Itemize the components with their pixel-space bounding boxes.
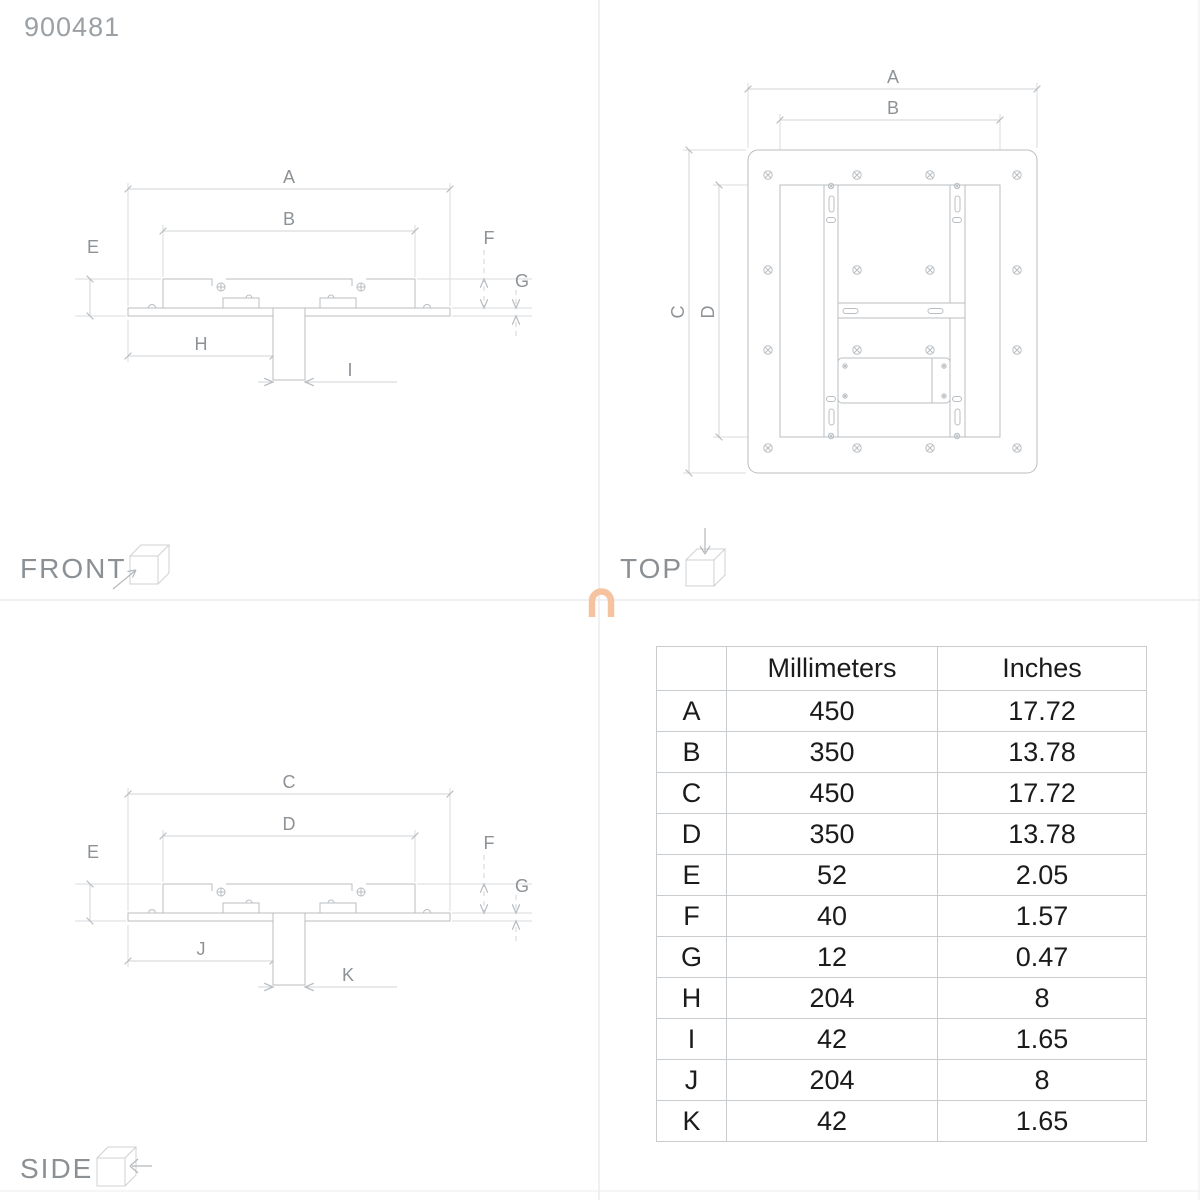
- watermark: [592, 592, 611, 618]
- side-view-drawing: C D E F G J K: [75, 772, 532, 987]
- mm-value-cell: 450: [727, 773, 938, 814]
- table-row: H2048: [657, 978, 1147, 1019]
- mm-value-cell: 52: [727, 855, 938, 896]
- inch-value-cell: 17.72: [938, 691, 1147, 732]
- table-header-inches: Inches: [938, 647, 1147, 691]
- drawing-sheet: { "product_code": "900481", "views": { "…: [0, 0, 1200, 1200]
- front-dim-label-b: B: [283, 209, 295, 229]
- table-row: B35013.78: [657, 732, 1147, 773]
- front-view-title: FRONT: [20, 553, 126, 584]
- table-row: C45017.72: [657, 773, 1147, 814]
- table-row: I421.65: [657, 1019, 1147, 1060]
- front-dim-label-f: F: [484, 228, 495, 248]
- front-dim-label-h: H: [195, 334, 208, 354]
- front-dim-label-g: G: [515, 271, 529, 291]
- dimension-table: Millimeters Inches A45017.72B35013.78C45…: [656, 646, 1146, 1142]
- inch-value-cell: 1.57: [938, 896, 1147, 937]
- dim-key-cell: D: [657, 814, 727, 855]
- cross-bracket: [838, 303, 965, 318]
- dimension-table-body: A45017.72B35013.78C45017.72D35013.78E522…: [657, 691, 1147, 1142]
- inch-value-cell: 0.47: [938, 937, 1147, 978]
- dim-key-cell: J: [657, 1060, 727, 1101]
- product-code: 900481: [24, 12, 120, 42]
- top-view-title: TOP: [620, 553, 683, 584]
- side-dim-label-d: D: [283, 814, 296, 834]
- table-row: E522.05: [657, 855, 1147, 896]
- side-dim-label-j: J: [197, 939, 206, 959]
- dim-key-cell: A: [657, 691, 727, 732]
- mm-value-cell: 204: [727, 1060, 938, 1101]
- mm-value-cell: 350: [727, 732, 938, 773]
- driver-box: [838, 358, 950, 403]
- table-header-row: Millimeters Inches: [657, 647, 1147, 691]
- table-row: J2048: [657, 1060, 1147, 1101]
- dim-key-cell: C: [657, 773, 727, 814]
- inch-value-cell: 1.65: [938, 1019, 1147, 1060]
- table-header-millimeters: Millimeters: [727, 647, 938, 691]
- table-header-key: [657, 647, 727, 691]
- top-dim-label-d: D: [698, 306, 718, 319]
- top-dim-label-c: C: [668, 306, 688, 319]
- front-dim-label-i: I: [347, 360, 352, 380]
- mm-value-cell: 42: [727, 1019, 938, 1060]
- inch-value-cell: 1.65: [938, 1101, 1147, 1142]
- top-view-drawing: A B C D: [668, 67, 1037, 473]
- dim-key-cell: B: [657, 732, 727, 773]
- dim-key-cell: F: [657, 896, 727, 937]
- inch-value-cell: 13.78: [938, 814, 1147, 855]
- inch-value-cell: 13.78: [938, 732, 1147, 773]
- top-dim-label-b: B: [887, 98, 899, 118]
- side-dim-label-k: K: [342, 965, 354, 985]
- front-view-drawing: A B E F G H I: [75, 167, 532, 382]
- inch-value-cell: 8: [938, 1060, 1147, 1101]
- side-dim-label-f: F: [484, 833, 495, 853]
- mm-value-cell: 204: [727, 978, 938, 1019]
- mm-value-cell: 350: [727, 814, 938, 855]
- dim-key-cell: E: [657, 855, 727, 896]
- table-row: G120.47: [657, 937, 1147, 978]
- side-dim-label-g: G: [515, 876, 529, 896]
- dim-key-cell: H: [657, 978, 727, 1019]
- side-dim-label-e: E: [87, 842, 99, 862]
- side-view-title: SIDE: [20, 1153, 93, 1184]
- top-dim-label-a: A: [887, 67, 899, 87]
- inch-value-cell: 8: [938, 978, 1147, 1019]
- inch-value-cell: 17.72: [938, 773, 1147, 814]
- inch-value-cell: 2.05: [938, 855, 1147, 896]
- side-view-cube-icon: [97, 1147, 152, 1186]
- table-row: A45017.72: [657, 691, 1147, 732]
- table-row: D35013.78: [657, 814, 1147, 855]
- table-row: F401.57: [657, 896, 1147, 937]
- top-view-cube-icon: [686, 528, 725, 586]
- front-dim-label-a: A: [283, 167, 295, 187]
- mm-value-cell: 12: [727, 937, 938, 978]
- dim-key-cell: I: [657, 1019, 727, 1060]
- front-dim-label-e: E: [87, 237, 99, 257]
- mm-value-cell: 42: [727, 1101, 938, 1142]
- dim-key-cell: G: [657, 937, 727, 978]
- mm-value-cell: 450: [727, 691, 938, 732]
- dim-key-cell: K: [657, 1101, 727, 1142]
- side-dim-label-c: C: [283, 772, 296, 792]
- table-row: K421.65: [657, 1101, 1147, 1142]
- mm-value-cell: 40: [727, 896, 938, 937]
